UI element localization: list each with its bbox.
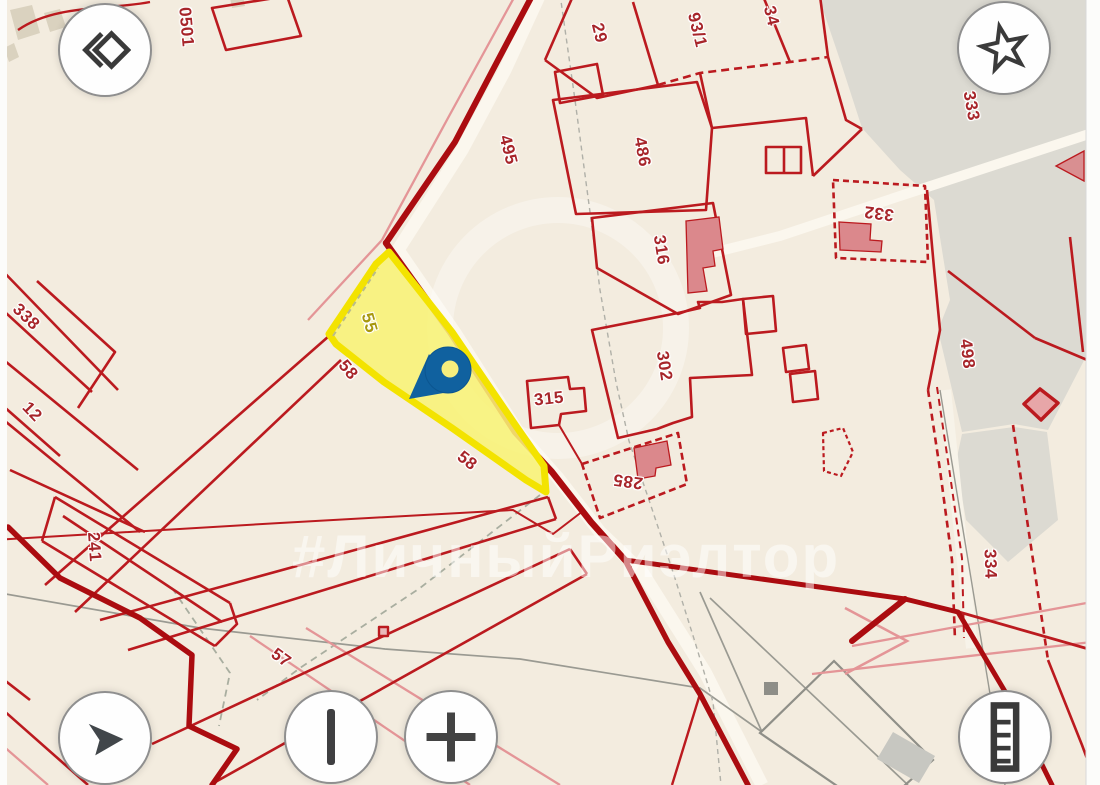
gray-square-marker: [764, 682, 778, 695]
measure-button[interactable]: [958, 690, 1052, 784]
layers-back-button[interactable]: [58, 3, 152, 97]
left-edge-strip: [0, 0, 7, 785]
right-edge-strip: [1086, 0, 1100, 785]
vertical-bar-icon: [305, 705, 357, 769]
layers-diamond-icon: [79, 24, 131, 76]
navigation-arrow-icon: [79, 712, 131, 764]
my-location-button[interactable]: [58, 691, 152, 785]
zoom-in-button[interactable]: [404, 690, 498, 784]
star-icon: [976, 20, 1032, 76]
map-screen: 05012993/1343333324954863163023152854983…: [0, 0, 1100, 785]
plus-icon: [419, 705, 483, 769]
favorites-button[interactable]: [957, 1, 1051, 95]
zoom-out-button[interactable]: [284, 690, 378, 784]
cadastral-map-canvas[interactable]: [0, 0, 1100, 785]
ruler-icon: [979, 699, 1031, 775]
